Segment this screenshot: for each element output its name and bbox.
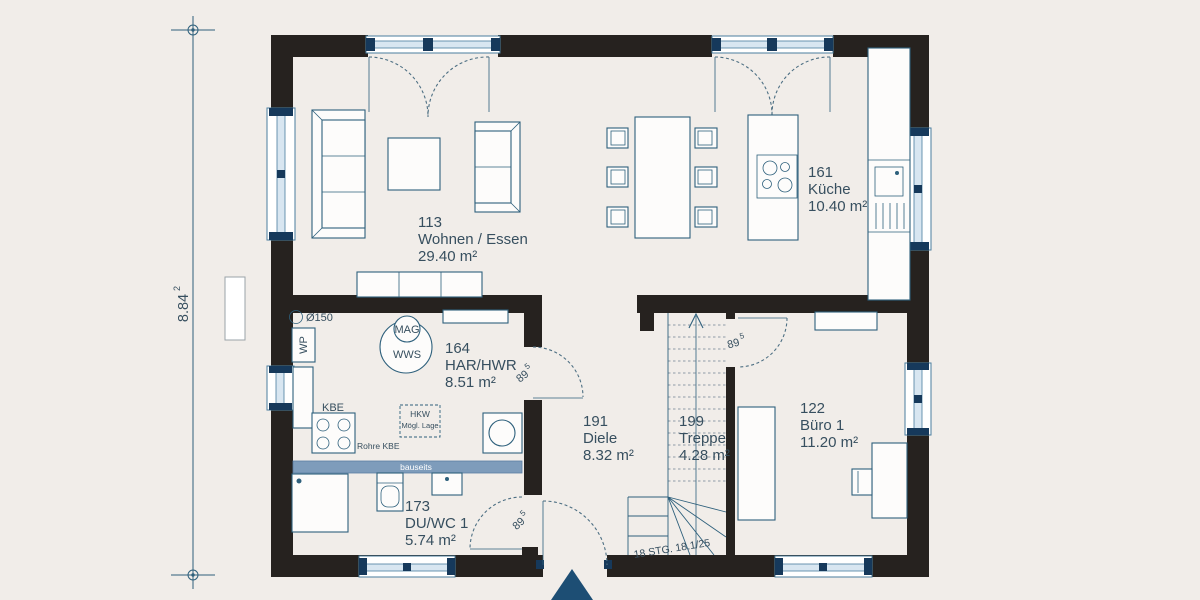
svg-text:Büro 1: Büro 1 — [800, 417, 844, 434]
dining-table — [635, 117, 690, 238]
svg-text:5: 5 — [739, 331, 746, 341]
room-label-kueche: 161 Küche 10.40 m² — [808, 164, 867, 215]
dimension-line: 8.84 2 — [171, 16, 215, 589]
washing-machine — [483, 413, 522, 453]
wall-stair-right-upper — [726, 313, 735, 319]
boiler-tank: MAG WWS — [380, 316, 432, 373]
wws-label: WWS — [393, 349, 421, 361]
wall-top-middle-segment — [498, 35, 712, 57]
svg-text:199: 199 — [679, 413, 704, 430]
room-label-wohnen: 113 Wohnen / Essen 29.40 m² — [418, 214, 528, 265]
svg-text:8.32 m²: 8.32 m² — [583, 447, 634, 464]
svg-text:Mögl. Lage: Mögl. Lage — [401, 421, 438, 430]
wall-har-lower — [524, 400, 542, 495]
bauseits-partition: bauseits — [293, 461, 522, 473]
kbe-unit — [312, 413, 355, 453]
toilet — [377, 473, 403, 511]
window-buero-bottom — [775, 556, 872, 577]
dimension-value: 8.84 — [176, 294, 192, 322]
window-buero-right — [905, 363, 931, 435]
wall-entrance-jamb — [522, 547, 538, 555]
french-door-dining — [712, 36, 833, 115]
room-wohnen-essen: 113 Wohnen / Essen 29.40 m² — [312, 110, 717, 297]
rohre-kbe-label: Rohre KBE — [357, 441, 400, 451]
door-width-duwc: 89 — [510, 515, 527, 532]
washbasin — [432, 473, 462, 495]
svg-text:161: 161 — [808, 164, 833, 181]
floorplan-drawing: 8.84 2 — [0, 0, 1200, 600]
wall-stair-stub — [640, 313, 654, 331]
kbe-label: KBE — [322, 402, 344, 414]
svg-text:HKW: HKW — [410, 409, 430, 419]
shower — [292, 474, 348, 532]
svg-text:Diele: Diele — [583, 430, 617, 447]
svg-text:11.20 m²: 11.20 m² — [800, 434, 858, 451]
svg-text:Küche: Küche — [808, 181, 851, 198]
sofa-large — [312, 110, 365, 238]
svg-text:191: 191 — [583, 413, 608, 430]
svg-text:HAR/HWR: HAR/HWR — [445, 357, 517, 374]
svg-text:173: 173 — [405, 498, 430, 515]
buero-shelf — [815, 312, 877, 330]
room-har-hwr: Ø150 WP MAG WWS KBE Rohre KBE HKW Mögl. … — [290, 310, 523, 453]
door-buero: 89 5 — [725, 318, 787, 367]
room-label-har: 164 HAR/HWR 8.51 m² — [445, 340, 517, 391]
floorplan-canvas: 8.84 2 — [0, 0, 1200, 600]
svg-text:Treppe: Treppe — [679, 430, 726, 447]
tall-cabinet — [293, 367, 313, 428]
wp-label: WP — [298, 336, 310, 354]
entrance-door — [536, 501, 612, 600]
desk — [872, 443, 907, 518]
window-duwc — [359, 556, 455, 577]
room-duwc: 173 DU/WC 1 5.74 m² — [292, 473, 468, 549]
svg-text:8.51 m²: 8.51 m² — [445, 374, 496, 391]
har-shelf — [443, 310, 508, 323]
svg-text:122: 122 — [800, 400, 825, 417]
svg-text:29.40 m²: 29.40 m² — [418, 248, 477, 265]
dimension-label: 8.84 2 — [172, 286, 192, 322]
svg-text:Wohnen / Essen: Wohnen / Essen — [418, 231, 528, 248]
coffee-table — [388, 138, 440, 190]
room-buero: 122 Büro 1 11.20 m² — [738, 312, 907, 520]
desk-chair — [852, 469, 872, 495]
svg-text:164: 164 — [445, 340, 470, 357]
window-har — [267, 366, 294, 410]
window-living — [267, 108, 295, 240]
svg-text:4.28 m²: 4.28 m² — [679, 447, 730, 464]
room-label-duwc: 173 DU/WC 1 5.74 m² — [405, 498, 468, 549]
sofa-small — [475, 122, 520, 212]
kitchen-counter — [868, 48, 910, 300]
room-label-diele: 191 Diele 8.32 m² — [583, 413, 634, 464]
mag-label: MAG — [394, 324, 419, 336]
sideboard — [357, 272, 482, 297]
exterior-light-well — [225, 277, 245, 340]
french-door-living — [366, 36, 500, 117]
dimension-superscript: 2 — [172, 286, 182, 291]
svg-text:113: 113 — [418, 214, 442, 231]
room-label-buero: 122 Büro 1 11.20 m² — [800, 400, 858, 451]
svg-text:5.74 m²: 5.74 m² — [405, 532, 456, 549]
wall-har-upper — [524, 313, 542, 347]
door-duwc: 89 5 — [470, 497, 533, 549]
hkw-area: HKW Mögl. Lage — [400, 405, 440, 437]
bauseits-label: bauseits — [400, 462, 432, 472]
diameter-label: Ø150 — [306, 312, 333, 324]
wardrobe — [738, 407, 775, 520]
svg-text:DU/WC 1: DU/WC 1 — [405, 515, 468, 532]
kitchen-island — [748, 115, 798, 240]
door-har: 89 5 — [512, 347, 583, 398]
door-width-buero: 89 — [726, 337, 741, 352]
room-kueche: 161 Küche 10.40 m² — [748, 48, 910, 300]
svg-text:10.40 m²: 10.40 m² — [808, 198, 867, 215]
